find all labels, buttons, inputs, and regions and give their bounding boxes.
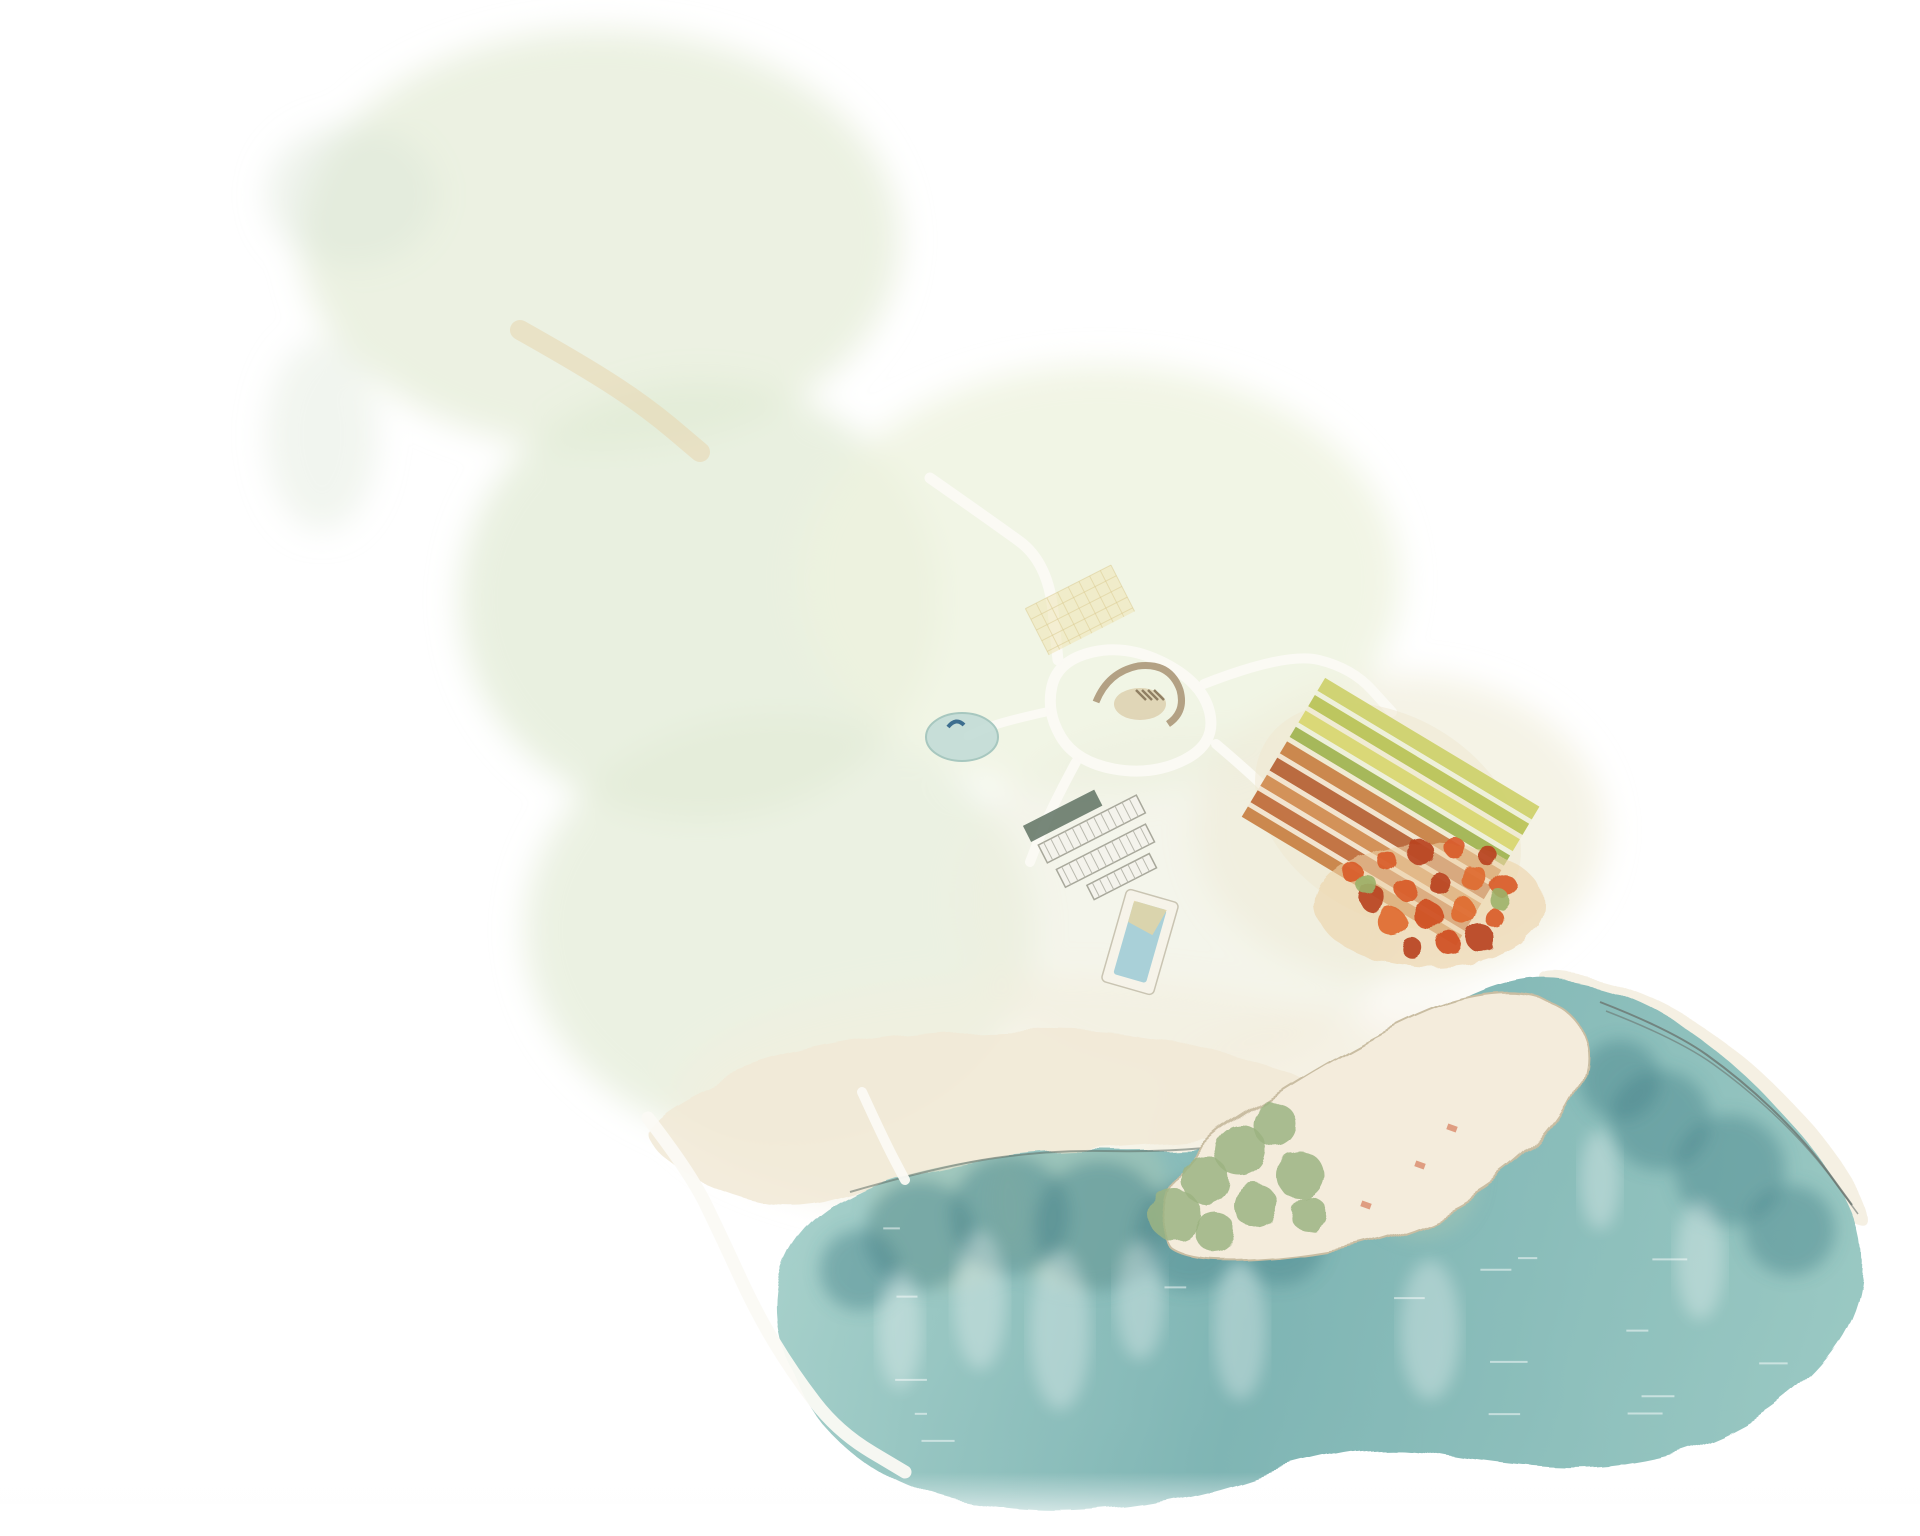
dark-reflection bbox=[1580, 1040, 1660, 1120]
beach-bush bbox=[1195, 1212, 1235, 1252]
flowering-orchard-tree bbox=[1402, 938, 1422, 958]
orchard-green-tree bbox=[1356, 874, 1376, 894]
flowering-orchard-tree bbox=[1376, 850, 1396, 870]
flowering-orchard-tree bbox=[1407, 839, 1434, 866]
flowering-orchard-tree bbox=[1429, 873, 1450, 894]
light-reflection bbox=[878, 1270, 922, 1390]
flowering-orchard-tree bbox=[1378, 908, 1406, 936]
light-reflection bbox=[954, 1230, 1006, 1370]
orchard-green-tree bbox=[1490, 890, 1510, 910]
flowering-orchard-tree bbox=[1444, 837, 1465, 858]
park-masterplan-illustration bbox=[0, 0, 1920, 1536]
wash-blob bbox=[267, 125, 437, 265]
light-reflection bbox=[1030, 1250, 1090, 1410]
beach-bush bbox=[1276, 1151, 1324, 1199]
light-reflection bbox=[1214, 1260, 1266, 1400]
flowering-orchard-tree bbox=[1395, 879, 1416, 900]
flowering-orchard-tree bbox=[1478, 846, 1498, 866]
flowering-orchard-tree bbox=[1461, 865, 1487, 891]
light-reflection bbox=[1580, 1130, 1620, 1230]
dark-reflection bbox=[1745, 1185, 1835, 1275]
wash-blob bbox=[267, 340, 377, 530]
flowering-orchard-tree bbox=[1414, 901, 1442, 929]
flowering-orchard-tree bbox=[1436, 930, 1460, 954]
light-reflection bbox=[1116, 1240, 1164, 1360]
beach-bush bbox=[1253, 1103, 1297, 1147]
flowering-orchard-tree bbox=[1449, 897, 1475, 923]
beach-bush bbox=[1233, 1183, 1277, 1227]
bottom-fade bbox=[0, 1472, 1920, 1536]
light-reflection bbox=[1400, 1260, 1460, 1400]
beach-bush bbox=[1292, 1197, 1328, 1233]
flowering-orchard-tree bbox=[1485, 909, 1504, 928]
flowering-orchard-tree bbox=[1466, 924, 1494, 952]
splash-play-pond bbox=[926, 713, 998, 761]
watercolor-park-map-canvas bbox=[0, 0, 1920, 1536]
